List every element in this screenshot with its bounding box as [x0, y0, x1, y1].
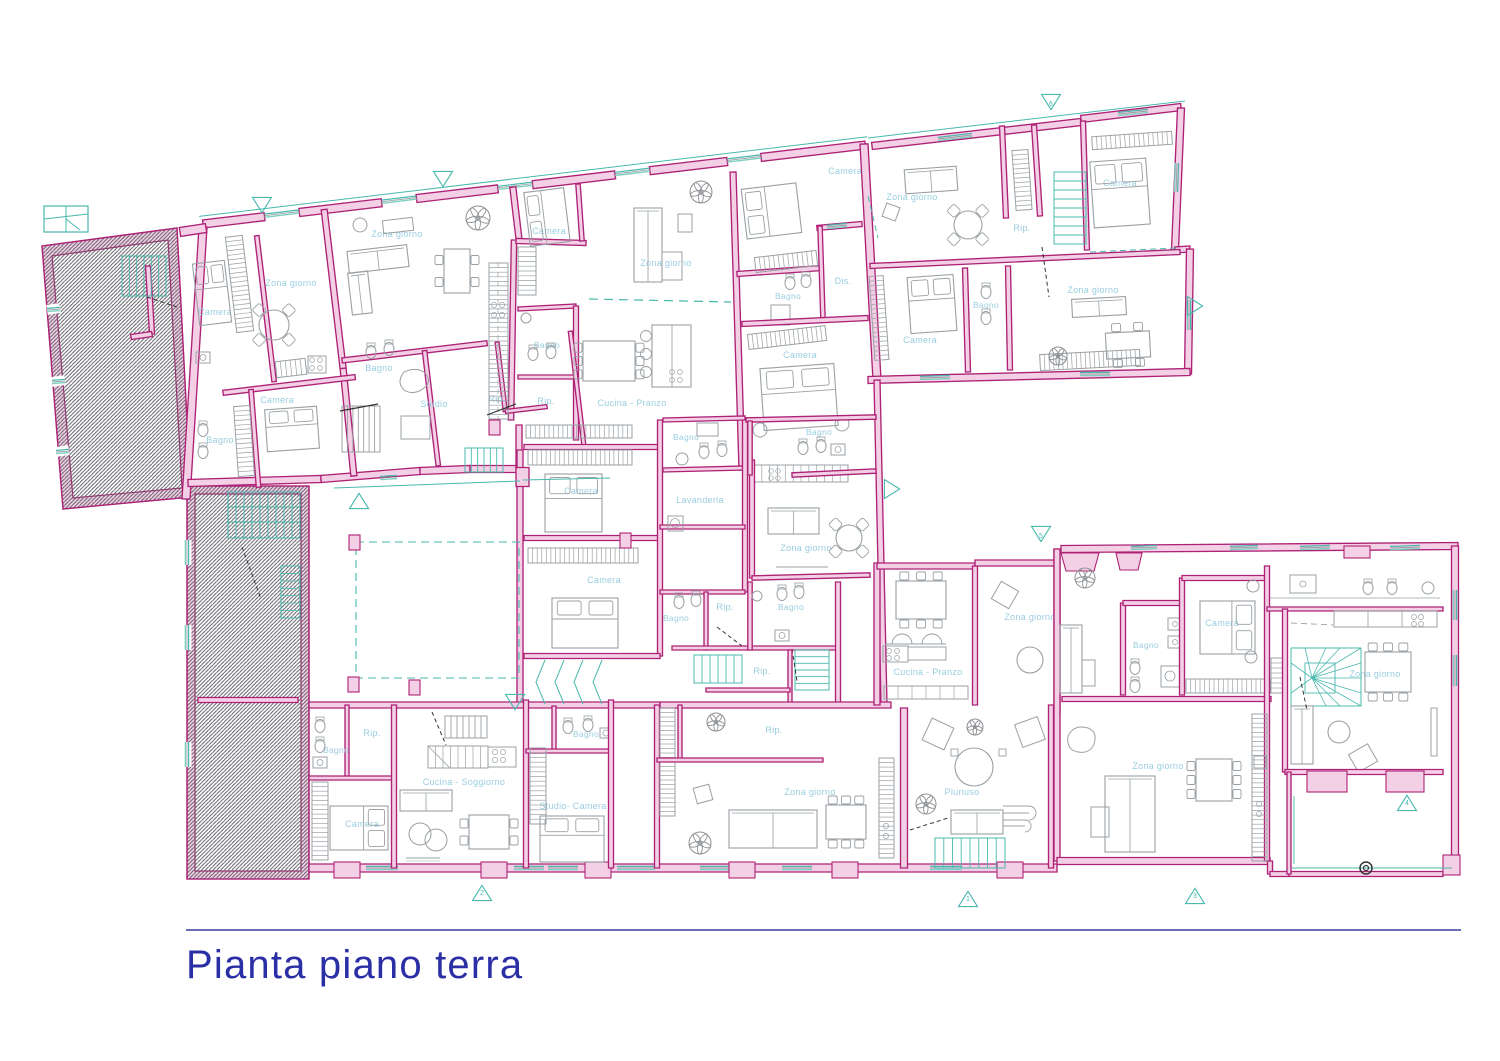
svg-text:Lavanderia: Lavanderia [676, 495, 724, 505]
svg-text:Camera: Camera [828, 166, 862, 176]
svg-text:Bagno: Bagno [206, 435, 234, 445]
svg-text:Camera: Camera [587, 575, 621, 585]
svg-text:Bagno: Bagno [663, 613, 689, 623]
svg-text:Bagno: Bagno [673, 432, 699, 442]
svg-text:Rip.: Rip. [753, 666, 770, 676]
svg-text:Zona giorno: Zona giorno [780, 543, 831, 553]
svg-text:Camera: Camera [783, 350, 817, 360]
svg-text:Camera: Camera [564, 486, 598, 496]
svg-text:Bagno: Bagno [778, 602, 804, 612]
svg-text:Zona giorno: Zona giorno [1132, 761, 1183, 771]
svg-text:Zona giorno: Zona giorno [1349, 669, 1400, 679]
svg-text:4: 4 [1405, 800, 1409, 807]
svg-text:Zona giorno: Zona giorno [784, 787, 835, 797]
svg-text:Rip.: Rip. [1013, 223, 1030, 233]
svg-text:Camera: Camera [260, 395, 294, 405]
svg-text:Camera: Camera [345, 819, 379, 829]
svg-text:Camera: Camera [1205, 618, 1239, 628]
svg-text:Rip.: Rip. [363, 728, 380, 738]
svg-text:Cucina - Soggiorno: Cucina - Soggiorno [423, 777, 505, 787]
svg-text:1: 1 [966, 896, 970, 903]
svg-text:Camera: Camera [198, 307, 232, 317]
svg-text:Pianta piano terra: Pianta piano terra [186, 943, 523, 987]
svg-text:Cucina - Pranzo: Cucina - Pranzo [597, 398, 666, 408]
svg-text:Bagno: Bagno [806, 427, 832, 437]
svg-text:Pluriuso: Pluriuso [945, 787, 980, 797]
svg-text:Rip.: Rip. [537, 396, 554, 406]
svg-text:5: 5 [1039, 533, 1043, 540]
svg-text:Rip.: Rip. [765, 725, 782, 735]
svg-text:Bagno: Bagno [323, 745, 349, 755]
svg-text:2: 2 [480, 890, 484, 897]
svg-text:Camera: Camera [532, 226, 566, 236]
svg-text:Bagno: Bagno [365, 363, 393, 373]
svg-text:Studio- Camera: Studio- Camera [539, 801, 606, 811]
svg-text:Zona giorno: Zona giorno [265, 278, 316, 288]
svg-text:Rip.: Rip. [716, 602, 733, 612]
svg-text:6: 6 [1049, 101, 1053, 108]
svg-text:Camera: Camera [903, 335, 937, 345]
svg-text:Rip.: Rip. [488, 394, 505, 404]
svg-text:Zona giorno: Zona giorno [1004, 612, 1055, 622]
svg-text:Zona giorno: Zona giorno [371, 229, 422, 239]
svg-text:Bagno: Bagno [973, 300, 999, 310]
svg-text:3: 3 [1193, 893, 1197, 900]
svg-text:Studio: Studio [420, 399, 447, 409]
svg-text:Bagno: Bagno [1133, 640, 1159, 650]
svg-text:Cucina - Pranzo: Cucina - Pranzo [893, 667, 962, 677]
svg-text:Bagno: Bagno [775, 291, 801, 301]
svg-text:Dis.: Dis. [835, 276, 852, 286]
svg-text:Zona giorno: Zona giorno [1067, 285, 1118, 295]
